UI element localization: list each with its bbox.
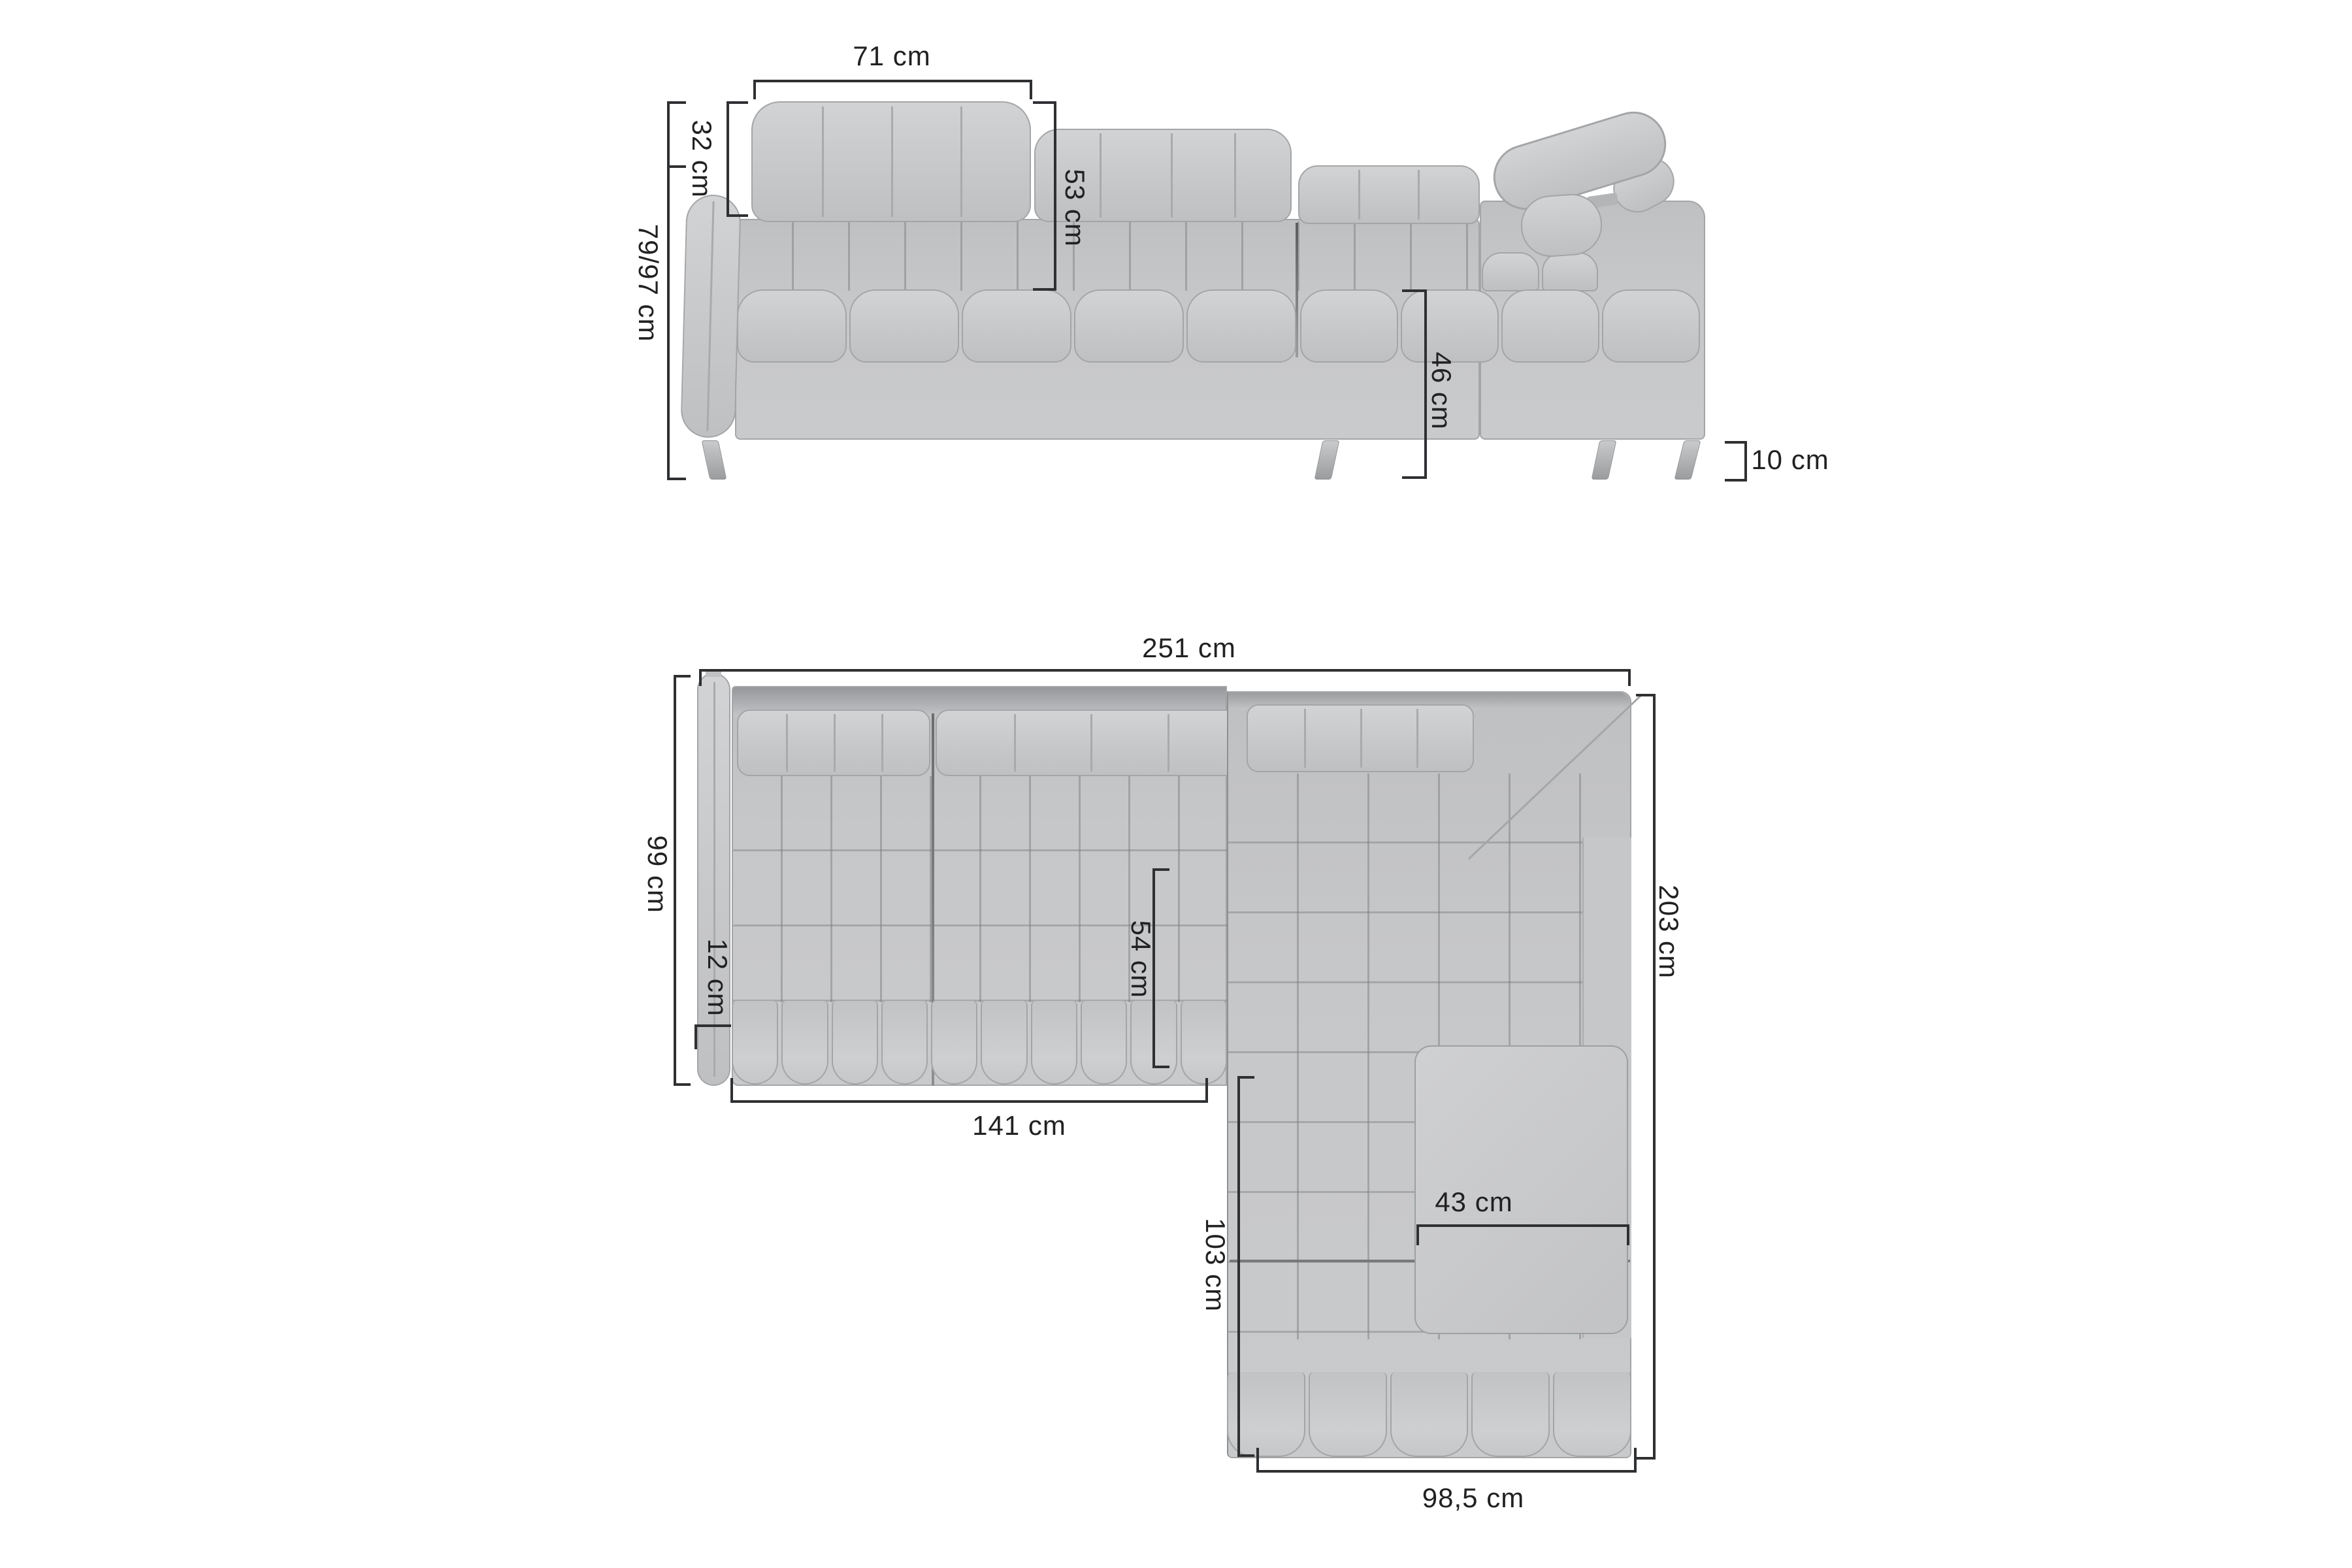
sofa-front-chaise-upper-cushion-1 xyxy=(1482,252,1539,291)
dim-203-tick-bottom xyxy=(1636,1457,1656,1460)
dim-203-tick-top xyxy=(1636,694,1656,696)
sofa-front-seat-cushion xyxy=(962,289,1071,363)
top-view: 251 cm 99 cm 12 cm 54 cm 141 cm xyxy=(0,523,2352,1568)
dim-79-97-label: 79/97 cm xyxy=(632,185,664,381)
dim-32-tick-top xyxy=(727,101,748,104)
dim-43-line xyxy=(1416,1224,1629,1227)
headrest-2-channel-seam xyxy=(1100,133,1102,218)
dim-10-label: 10 cm xyxy=(1692,444,1888,476)
top-cushion-1-channel xyxy=(786,714,788,772)
headrest-3-channel-seam xyxy=(1418,170,1420,220)
top-cushion-2-channel xyxy=(1014,714,1016,772)
sofa-front-seat-cushion xyxy=(1602,289,1700,363)
cushion-scallop xyxy=(1309,1372,1387,1457)
cushion-scallop xyxy=(1031,1001,1077,1085)
sofa-front-seat-cushion xyxy=(1501,289,1599,363)
dim-103-label: 103 cm xyxy=(1200,1167,1231,1363)
cushion-scallop xyxy=(1081,1001,1127,1085)
dimension-diagram: 71 cm 32 cm 79/97 cm 53 cm xyxy=(0,0,2352,1568)
cushion-scallop xyxy=(1390,1372,1469,1457)
dim-99-tick-bottom xyxy=(674,1083,691,1086)
dim-46-tick-bottom xyxy=(1402,476,1424,479)
sofa-front-seat-cushion xyxy=(1186,289,1296,363)
dim-141-line xyxy=(730,1100,1208,1103)
cushion-scallop xyxy=(931,1001,977,1085)
dim-53-tick-bottom xyxy=(1033,288,1054,291)
dim-12-drop xyxy=(694,1024,697,1049)
cushion-scallop xyxy=(732,1001,778,1085)
sofa-front-leg-left xyxy=(702,440,727,480)
dim-53-label: 53 cm xyxy=(1059,110,1090,306)
sofa-front-seat-cushion xyxy=(737,289,847,363)
top-cushion-2-channel xyxy=(1168,714,1169,772)
sofa-front-backrest-channels xyxy=(738,221,1477,291)
dim-98-5-tick-left xyxy=(1256,1448,1259,1473)
dim-43-tick-left xyxy=(1416,1224,1419,1245)
dim-98-5-line xyxy=(1256,1470,1637,1473)
dim-46-tick-top xyxy=(1402,289,1424,292)
headrest-2-channel-seam xyxy=(1171,133,1173,218)
dim-54-tick-bottom xyxy=(1152,1066,1169,1068)
headrest-3-channel-seam xyxy=(1358,170,1360,220)
headrest-1-channel-seam xyxy=(960,106,962,217)
front-view: 71 cm 32 cm 79/97 cm 53 cm xyxy=(0,0,2352,523)
dim-54-label: 54 cm xyxy=(1125,861,1156,1057)
dim-98-5-label: 98,5 cm xyxy=(1375,1482,1571,1514)
dim-10-tick-top xyxy=(1725,441,1747,444)
cushion-scallop xyxy=(781,1001,828,1085)
dim-32-label: 32 cm xyxy=(686,61,717,257)
dim-71-tick-left xyxy=(753,80,756,99)
dim-99-tick-top xyxy=(674,675,691,678)
cushion-scallop xyxy=(832,1001,878,1085)
sofa-front-seat-cushion xyxy=(1300,289,1398,363)
cushion-scallop xyxy=(981,1001,1027,1085)
dim-53-line xyxy=(1054,101,1056,291)
dim-103-line xyxy=(1237,1076,1240,1457)
dim-32-tick-bottom xyxy=(727,214,748,217)
dim-53-tick-top xyxy=(1033,101,1054,104)
cushion-scallop xyxy=(881,1001,928,1085)
dim-71-line xyxy=(753,80,1032,82)
corner-cushion-channel xyxy=(1360,709,1362,768)
cushion-scallop xyxy=(1181,1001,1227,1085)
corner-cushion-channel xyxy=(1416,709,1418,768)
dim-79-97-tick-top xyxy=(667,101,686,104)
dim-103-tick-top xyxy=(1237,1076,1254,1079)
headrest-1-channel-seam xyxy=(822,106,824,217)
dim-251-tick-right xyxy=(1628,669,1631,686)
sofa-top-corner-backrest-cushion xyxy=(1247,704,1474,772)
dim-99-line xyxy=(674,675,676,1086)
dim-71-tick-right xyxy=(1030,80,1032,99)
dim-103-tick-bottom xyxy=(1237,1454,1254,1457)
cushion-scallop xyxy=(1553,1372,1631,1457)
top-cushion-1-channel xyxy=(881,714,883,772)
sofa-front-chaise-upper-cushion-2 xyxy=(1542,252,1598,291)
dim-12-label: 12 cm xyxy=(702,879,733,1075)
dim-79-97-tick-bottom xyxy=(667,478,686,480)
sofa-front-seat-cushion xyxy=(849,289,959,363)
corner-cushion-channel xyxy=(1304,709,1306,768)
dim-98-5-tick-right xyxy=(1634,1448,1637,1473)
dim-46-label: 46 cm xyxy=(1426,293,1457,489)
headrest-1-channel-seam xyxy=(891,106,893,217)
headrest-2-channel-seam xyxy=(1234,133,1236,218)
dim-71-label: 71 cm xyxy=(794,41,990,72)
dim-43-label: 43 cm xyxy=(1376,1186,1572,1218)
cushion-scallop xyxy=(1471,1372,1550,1457)
dim-251-label: 251 cm xyxy=(1091,632,1287,664)
dim-79-97-tick-mid xyxy=(667,165,686,168)
sofa-top-headrest-cushion-2 xyxy=(936,710,1245,776)
dim-79-97-line xyxy=(667,101,670,480)
dim-203-label: 203 cm xyxy=(1653,834,1684,1030)
dim-99-label: 99 cm xyxy=(642,776,673,972)
top-cushion-2-channel xyxy=(1090,714,1092,772)
dim-43-tick-right xyxy=(1627,1224,1629,1245)
sofa-front-headrest-3 xyxy=(1298,165,1480,224)
dim-32-line xyxy=(727,101,729,217)
sofa-front-leg-chaise xyxy=(1592,440,1617,480)
dim-10-tick-bottom xyxy=(1725,479,1747,482)
dim-141-label: 141 cm xyxy=(921,1110,1117,1141)
dim-141-tick-right xyxy=(1205,1078,1208,1103)
corner-bottom-cushion-row xyxy=(1227,1372,1631,1457)
sofa-front-headrest-1 xyxy=(751,101,1031,222)
sofa-front-seat-cushion xyxy=(1074,289,1184,363)
dim-251-line xyxy=(699,669,1631,672)
sofa-front-leg-mid xyxy=(1315,440,1340,480)
top-cushion-1-channel xyxy=(834,714,836,772)
dim-251-tick-left xyxy=(699,669,702,686)
dim-203-line xyxy=(1653,694,1656,1460)
sofa-top-headrest-cushion-1 xyxy=(737,710,930,776)
dim-141-tick-left xyxy=(730,1078,733,1103)
